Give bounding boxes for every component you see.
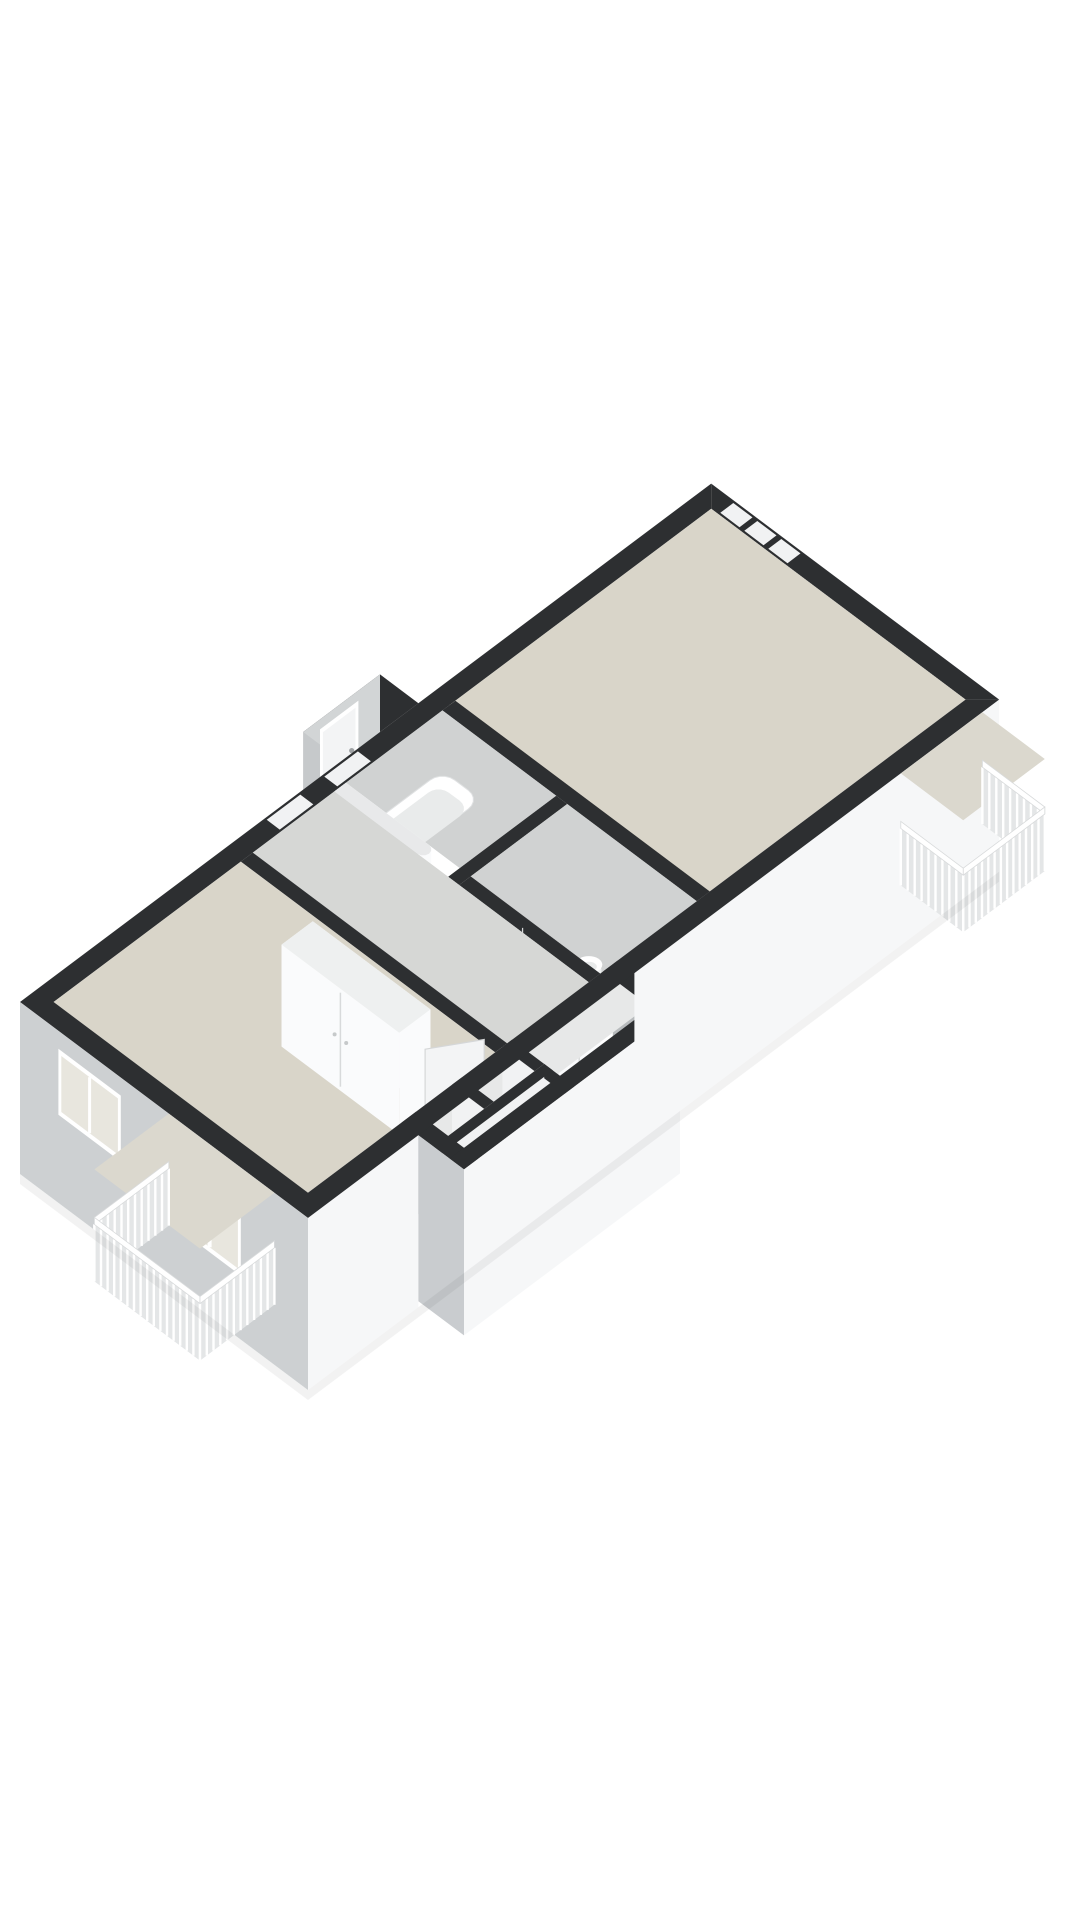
wardrobe-bedroom-handle-icon [333, 1032, 337, 1036]
wardrobe-bedroom-handle-icon [344, 1041, 348, 1045]
floorplan-3d [0, 0, 1080, 1920]
floorplan-svg [0, 0, 1080, 1920]
